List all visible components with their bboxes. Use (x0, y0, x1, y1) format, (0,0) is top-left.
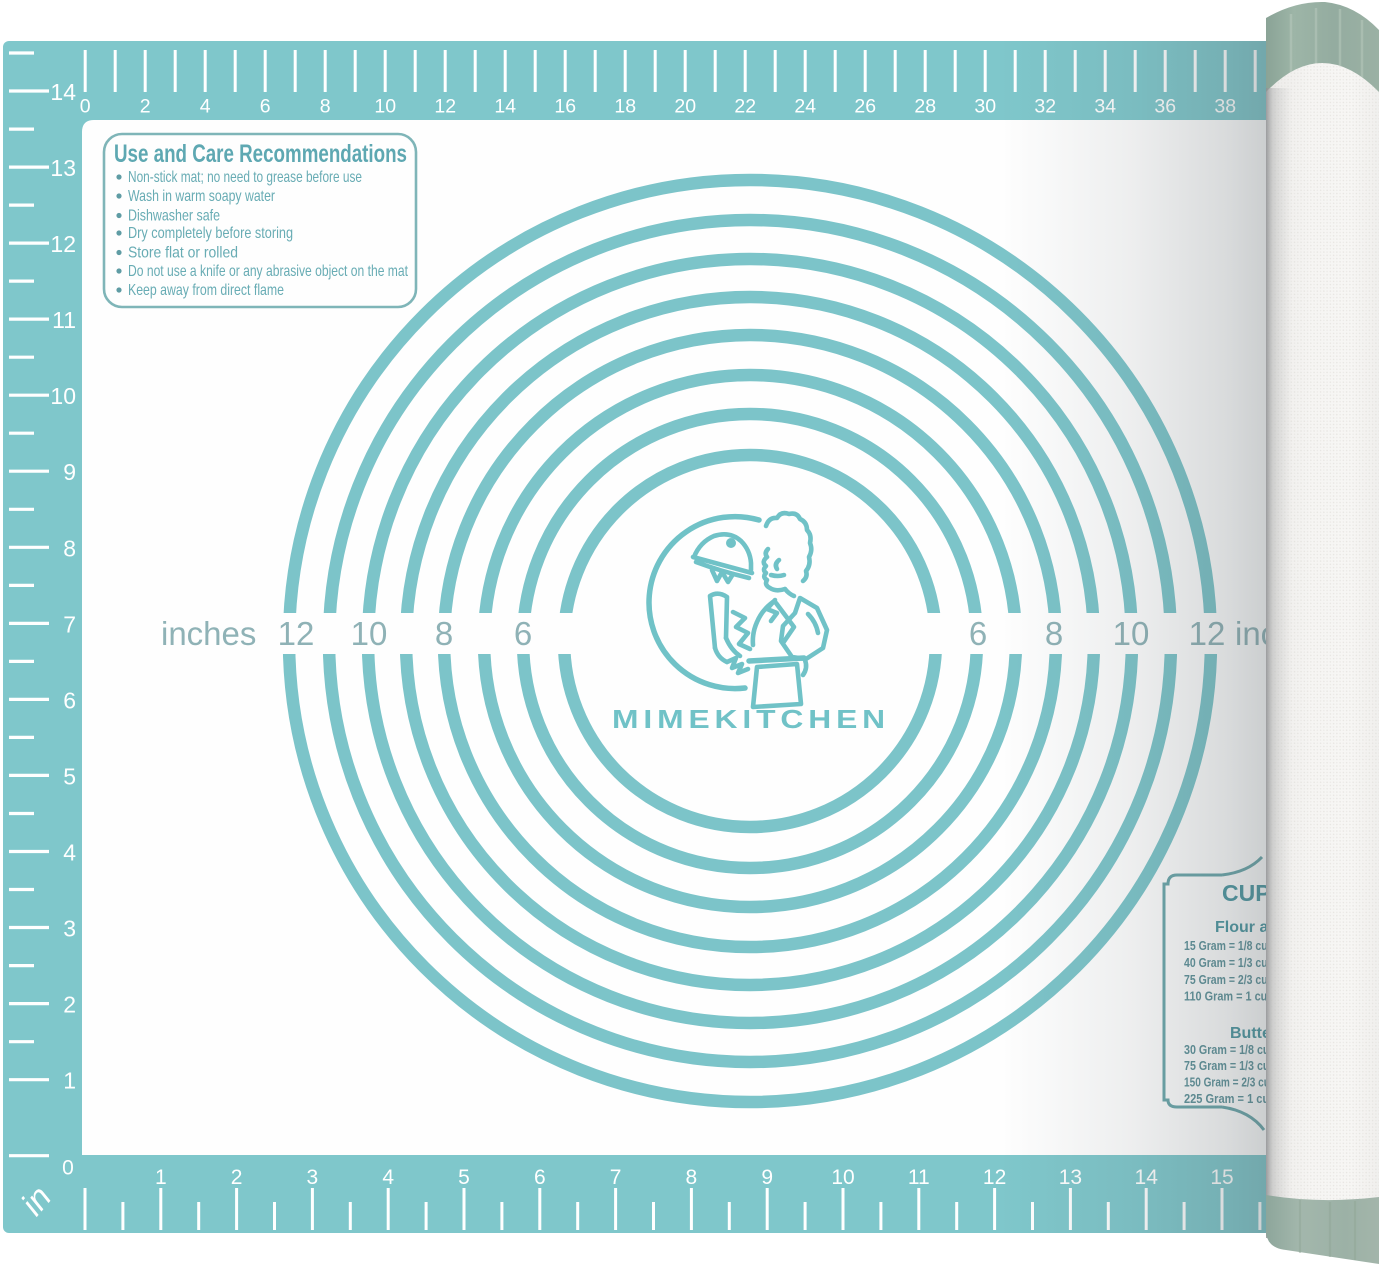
svg-text:Use and Care Recommendations: Use and Care Recommendations (114, 140, 407, 168)
svg-text:4: 4 (200, 96, 211, 118)
svg-text:Do not use a knife or any abra: Do not use a knife or any abrasive objec… (128, 263, 408, 280)
svg-text:8: 8 (63, 535, 76, 561)
svg-text:14: 14 (50, 79, 76, 105)
svg-text:11: 11 (908, 1166, 930, 1189)
svg-text:6: 6 (534, 1166, 546, 1189)
svg-text:8: 8 (320, 96, 331, 118)
svg-text:30: 30 (974, 96, 996, 118)
svg-text:1: 1 (155, 1166, 167, 1189)
svg-text:10: 10 (351, 615, 388, 652)
svg-text:8: 8 (435, 615, 453, 652)
svg-text:2: 2 (140, 96, 151, 118)
svg-text:28: 28 (914, 96, 936, 118)
svg-text:3: 3 (307, 1166, 319, 1189)
svg-text:9: 9 (63, 459, 76, 485)
svg-text:10: 10 (374, 96, 396, 118)
svg-text:8: 8 (686, 1166, 698, 1189)
svg-text:20: 20 (674, 96, 696, 118)
svg-text:26: 26 (854, 96, 876, 118)
svg-text:22: 22 (734, 96, 756, 118)
svg-text:6: 6 (969, 615, 987, 652)
svg-text:7: 7 (610, 1166, 622, 1189)
svg-text:Dry completely before storing: Dry completely before storing (128, 225, 293, 242)
svg-text:4: 4 (63, 840, 76, 866)
svg-text:12: 12 (434, 96, 456, 118)
svg-text:5: 5 (63, 763, 76, 789)
svg-text:Store flat or rolled: Store flat or rolled (128, 245, 238, 262)
svg-text:7: 7 (63, 611, 76, 637)
svg-text:10: 10 (831, 1166, 854, 1189)
svg-text:4: 4 (382, 1166, 394, 1189)
svg-text:6: 6 (260, 96, 271, 118)
svg-text:0: 0 (80, 96, 91, 118)
svg-text:3: 3 (63, 916, 76, 942)
svg-text:MIMEKITCHEN: MIMEKITCHEN (612, 704, 890, 734)
svg-text:Keep away from direct flame: Keep away from direct flame (128, 282, 284, 299)
svg-text:24: 24 (794, 96, 816, 118)
svg-text:Dishwasher safe: Dishwasher safe (128, 208, 220, 225)
svg-text:Wash in warm soapy water: Wash in warm soapy water (128, 188, 276, 205)
svg-text:0: 0 (62, 1157, 74, 1180)
svg-text:inches: inches (161, 615, 256, 652)
svg-text:Non-stick mat; no need to grea: Non-stick mat; no need to grease before … (128, 169, 362, 186)
svg-text:10: 10 (50, 383, 76, 409)
svg-text:18: 18 (614, 96, 636, 118)
svg-text:9: 9 (761, 1166, 773, 1189)
svg-text:6: 6 (514, 615, 532, 652)
svg-text:12: 12 (278, 615, 315, 652)
svg-text:13: 13 (50, 155, 76, 181)
svg-text:5: 5 (458, 1166, 470, 1189)
svg-text:2: 2 (231, 1166, 243, 1189)
svg-text:14: 14 (494, 96, 516, 118)
svg-text:11: 11 (52, 307, 76, 333)
svg-text:12: 12 (50, 231, 76, 257)
svg-text:2: 2 (63, 992, 76, 1018)
svg-text:6: 6 (63, 687, 76, 713)
svg-text:1: 1 (63, 1068, 76, 1094)
svg-text:16: 16 (554, 96, 576, 118)
